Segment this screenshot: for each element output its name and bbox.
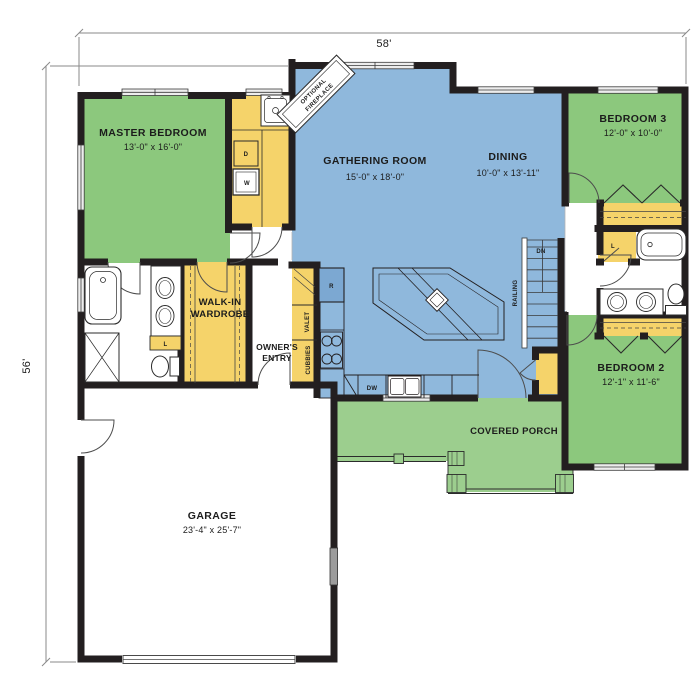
label-gathering-room-size: 15'-0" x 18'-0" [346,172,404,182]
floor-plan-drawing: 58' 56' [0,0,700,700]
label-master-bedroom-size: 13'-0" x 16'-0" [124,142,182,152]
porch-post [448,452,464,466]
stair-railing [522,238,527,348]
label-wardrobe-line2: WARDROBE [191,309,250,320]
label-wardrobe-line1: WALK-IN [199,297,242,308]
master-bath-fixtures [85,266,181,382]
vanity-master [151,266,181,336]
label-master-bedroom: MASTER BEDROOM [99,127,207,139]
toilet-master-bowl [152,356,169,377]
closet-bedroom-3 [598,203,688,228]
toilet-2-bowl [668,284,684,304]
garage-side-door [330,548,338,585]
label-bedroom-3: BEDROOM 3 [599,113,666,125]
label-owners-entry-line2: ENTRY [262,353,292,363]
floor-plan: 58' 56' [0,0,700,700]
overall-width-dimension: 58' [376,38,391,50]
label-bedroom-2-size: 12'-1" x 11'-6" [602,377,660,387]
label-covered-porch: COVERED PORCH [470,426,558,437]
label-valet: VALET [305,312,311,333]
vanity-bath-2 [600,289,663,315]
label-garage: GARAGE [188,510,237,522]
label-linen-master: L [164,342,168,348]
toilet-master-tank [170,357,180,376]
label-linen-bath: L [611,244,615,250]
room-bedroom-3 [565,90,688,203]
toilet-2-tank [666,306,687,316]
label-dishwasher: DW [367,386,378,392]
label-cubbies: CUBBIES [306,345,312,374]
door-laundry [252,227,282,257]
closet-dining [536,352,561,394]
label-garage-size: 23'-4" x 25'-7" [183,525,241,535]
label-washer: W [244,181,250,187]
label-dryer: D [244,152,249,158]
linen-closet-bath [598,228,636,262]
label-refrigerator: R [329,284,334,290]
porch-post [556,475,574,493]
label-gathering-room: GATHERING ROOM [323,155,426,167]
label-bedroom-2: BEDROOM 2 [597,362,664,374]
room-master-bedroom [78,92,230,263]
room-bedroom-2 [565,315,688,470]
overall-depth-dimension: 56' [21,358,33,373]
label-dining-size: 10'-0" x 13'-11" [477,168,540,178]
label-dining: DINING [488,151,527,163]
kitchen-sink [388,376,421,397]
porch-post [394,454,404,464]
label-bedroom-3-size: 12'-0" x 10'-0" [604,128,662,138]
room-walk-in-wardrobe [181,262,249,385]
label-owners-entry-line1: OWNER'S [256,342,298,352]
door-garage-service [81,420,114,453]
label-stairs-down: DN [536,249,545,255]
label-railing: RAILING [513,280,519,307]
garage-overhead-door [123,656,295,664]
porch-post [447,475,466,493]
